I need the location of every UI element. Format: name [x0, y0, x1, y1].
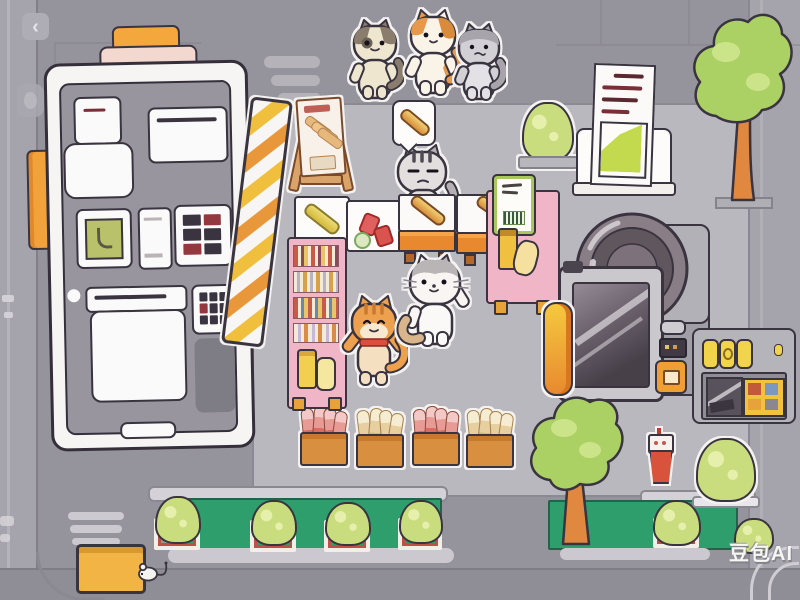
shelf-leg	[292, 397, 306, 411]
machine-orange-button[interactable]	[655, 360, 687, 394]
case-baguette-icon	[408, 193, 448, 228]
case-base	[398, 230, 456, 252]
shelf-goods-row	[293, 245, 339, 267]
widget-phone[interactable]	[138, 207, 173, 270]
key	[183, 215, 201, 227]
key	[200, 304, 208, 313]
widget-button-blank[interactable]	[63, 142, 134, 199]
shelf-goods-row	[293, 323, 339, 343]
chip-pixel	[673, 345, 677, 349]
key	[199, 292, 207, 301]
speech-baguette-icon	[398, 107, 432, 139]
bush-foliage	[155, 496, 201, 544]
speech-bubble	[392, 100, 436, 146]
key	[183, 243, 201, 255]
grid-cell	[765, 383, 778, 395]
bush-foliage	[399, 500, 443, 544]
crate-box	[466, 434, 514, 468]
sign-scribble-2	[502, 191, 518, 195]
drink-cup[interactable]	[648, 428, 672, 482]
report-paper	[590, 63, 656, 187]
vending-kiosk	[692, 328, 796, 424]
chart-green-area	[600, 123, 642, 172]
shelf-goods-row	[293, 271, 339, 293]
door-glass	[572, 282, 650, 388]
paper-line	[602, 85, 642, 90]
document-stand[interactable]	[570, 60, 676, 196]
key	[203, 214, 221, 226]
kiosk-lower-panel	[701, 372, 787, 420]
sign-barcode	[503, 211, 525, 225]
key	[210, 304, 218, 313]
chip-pixel	[665, 345, 669, 349]
crate-meat[interactable]	[412, 406, 460, 466]
shelf-goods-row	[293, 297, 339, 319]
crate-box	[300, 432, 348, 466]
glass-top	[398, 194, 456, 232]
shelf-bottle-2	[316, 357, 336, 391]
crate-bread[interactable]	[466, 408, 514, 468]
input-line	[157, 117, 217, 122]
lid-dot	[662, 441, 666, 445]
phone-bottom-line	[144, 253, 162, 257]
paper-line	[601, 109, 629, 114]
door-tab	[563, 261, 583, 273]
shelf-leg	[328, 397, 342, 411]
wall-vent-2	[271, 75, 320, 86]
machine-display-chip	[659, 338, 687, 358]
kiosk-window[interactable]	[706, 377, 743, 417]
bush-tray	[518, 156, 578, 169]
bush-on-green	[650, 500, 700, 550]
menu-panel	[295, 96, 346, 177]
potted-bush	[248, 500, 296, 556]
counter-case-meat[interactable]	[346, 200, 402, 252]
menu-footer-box	[309, 155, 336, 171]
pink-shelf[interactable]	[287, 237, 347, 409]
potted-bush	[152, 496, 200, 554]
button-glyph	[663, 370, 680, 385]
card-dash	[83, 108, 105, 111]
camera-machine	[552, 208, 708, 396]
step-slat	[68, 512, 124, 520]
crate-box	[412, 432, 460, 466]
machine-pill-button[interactable]	[660, 320, 686, 335]
yellow-capsule[interactable]	[543, 302, 573, 396]
potted-bush	[322, 502, 370, 556]
menu-board[interactable]	[290, 96, 350, 194]
cup-body	[649, 450, 673, 484]
key	[204, 243, 222, 255]
screen-dark-block	[194, 338, 236, 413]
wall-line-v2	[600, 0, 602, 44]
key	[183, 229, 201, 241]
widget-image-card[interactable]	[76, 208, 133, 269]
kiosk-dot	[774, 344, 783, 356]
kiosk-capsule-button[interactable]	[736, 339, 753, 369]
photo-sketch-stroke	[97, 227, 112, 248]
paper-line	[614, 74, 644, 79]
key	[209, 292, 217, 301]
road-mark-4	[0, 534, 10, 542]
watermark: 豆包AI	[729, 537, 793, 566]
crate-meat[interactable]	[300, 406, 348, 466]
machine-door[interactable]	[558, 266, 664, 402]
widget-card-small[interactable]	[73, 96, 122, 145]
key	[200, 315, 208, 325]
paper-line	[602, 97, 638, 102]
scene-canvas: ‹	[0, 0, 800, 600]
lid-dot	[654, 441, 658, 445]
white-cat[interactable]	[396, 250, 476, 354]
widget-keypad-card[interactable]	[173, 204, 232, 267]
widget-textarea[interactable]	[90, 309, 188, 403]
tabby-cat[interactable]	[346, 16, 404, 104]
grid-cell	[748, 399, 761, 410]
step-slat	[70, 525, 122, 533]
case-baguette-icon	[302, 201, 342, 237]
clipboard-tablet	[0, 0, 265, 463]
cart-sign	[494, 176, 534, 234]
kiosk-capsule-button[interactable]	[702, 339, 719, 369]
phone-top-line	[144, 217, 162, 220]
gray-cat[interactable]	[452, 20, 506, 104]
paper-area-chart	[598, 121, 648, 179]
road-mark-3	[0, 516, 14, 526]
bush-large-right	[696, 438, 756, 502]
grid-cell	[748, 383, 761, 395]
kiosk-grid[interactable]	[743, 378, 785, 417]
pink-cart[interactable]	[486, 176, 558, 312]
tree-tall	[688, 4, 798, 214]
key	[203, 228, 221, 240]
bush-small-top	[518, 102, 576, 168]
key	[210, 315, 218, 325]
sign-scribble-1	[502, 183, 522, 187]
grid-cell	[765, 399, 778, 410]
widget-input-field[interactable]	[147, 106, 228, 164]
shelf-bottle-1	[297, 349, 317, 389]
kiosk-capsule-button[interactable]	[719, 339, 736, 369]
bush-foliage	[325, 502, 371, 546]
tree-round	[524, 384, 628, 552]
lime-item	[354, 232, 371, 249]
wall-vent-1	[264, 56, 320, 68]
crate-bread[interactable]	[356, 408, 404, 468]
bush-foliage	[522, 102, 574, 162]
potted-bush	[396, 500, 442, 554]
mouse[interactable]	[136, 552, 176, 588]
cart-leg	[494, 300, 508, 315]
home-bar[interactable]	[120, 421, 176, 439]
menu-title-scribble	[304, 104, 330, 113]
crate-box	[356, 434, 404, 468]
keypad-glyphs	[183, 214, 222, 255]
search-line	[94, 294, 166, 300]
capsule-ring	[723, 348, 733, 360]
meat-piece-2	[372, 224, 394, 248]
bush-foliage	[251, 500, 297, 546]
plant-photo-icon	[85, 218, 124, 260]
